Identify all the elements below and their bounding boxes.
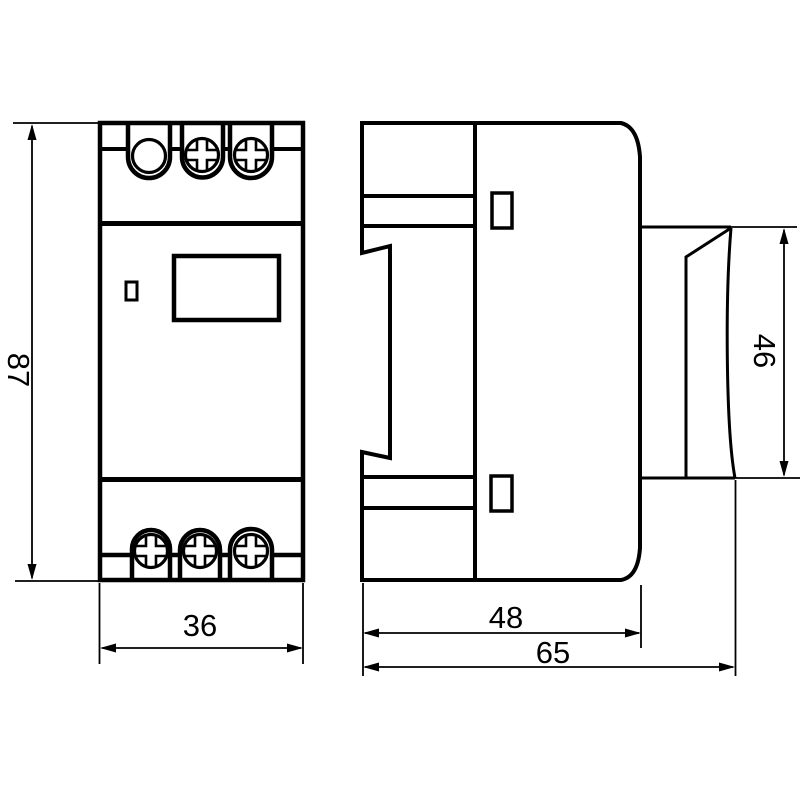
wing-right-edge [727,228,735,478]
bottom-terminal-screw-2 [184,535,217,568]
top-terminal-screw-2 [235,139,268,172]
front-body-outline [100,123,303,580]
dimension-rear-height: 46 [731,227,800,478]
dimension-front-width: 36 [100,583,304,664]
dimension-body-depth: 48 [363,583,641,676]
arrowhead-up [28,124,37,140]
rear-mounting-wing [640,227,735,478]
front-view [100,123,303,580]
bottom-terminal-screw-3 [235,535,268,568]
side-view [362,123,735,580]
arrowhead-left [363,663,379,672]
arrowhead-up [780,228,789,244]
top-terminal-hole [133,140,166,173]
dim-label-body-depth: 48 [489,600,523,635]
dimension-front-height: 87 [1,123,112,581]
arrowhead-left [363,629,379,638]
dimensional-drawing: 87 36 48 65 46 [0,0,800,800]
arrowhead-right [719,663,735,672]
dim-label-front-height: 87 [1,353,36,387]
dim-label-rear-height: 46 [747,334,782,368]
dim-label-front-width: 36 [183,608,217,643]
arrowhead-left [100,644,116,653]
arrowhead-down [780,461,789,477]
bottom-terminal-screw-1 [135,535,168,568]
top-terminal-screw-1 [186,139,219,172]
arrowhead-down [28,564,37,580]
arrowhead-right [625,629,641,638]
wing-left-edge [686,228,731,478]
dim-label-total-depth: 65 [536,635,570,670]
arrowhead-right [287,644,303,653]
technical-drawing-canvas: 87 36 48 65 46 [0,0,800,800]
